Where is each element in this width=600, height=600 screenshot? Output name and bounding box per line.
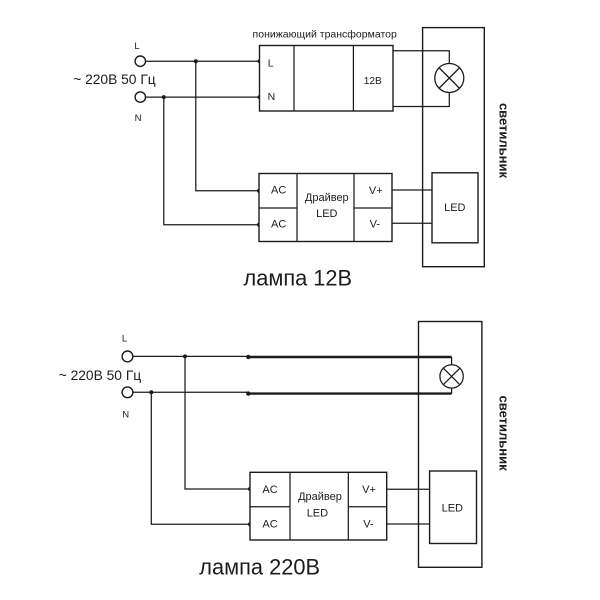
- svg-text:лампа 12В: лампа 12В: [244, 266, 353, 291]
- svg-text:L: L: [122, 333, 127, 344]
- svg-text:LED: LED: [316, 208, 337, 220]
- svg-text:V+: V+: [362, 484, 376, 496]
- svg-text:AC: AC: [271, 219, 286, 231]
- svg-text:V-: V-: [363, 518, 374, 530]
- svg-text:AC: AC: [271, 185, 286, 197]
- svg-text:светильник: светильник: [496, 396, 511, 472]
- svg-text:AC: AC: [262, 518, 277, 530]
- svg-text:лампа 220В: лампа 220В: [199, 554, 320, 579]
- svg-text:LED: LED: [442, 502, 463, 514]
- svg-text:L: L: [268, 58, 274, 70]
- svg-text:~ 220В 50 Гц: ~ 220В 50 Гц: [59, 368, 142, 383]
- svg-text:L: L: [134, 41, 139, 52]
- svg-text:LED: LED: [444, 202, 465, 214]
- svg-text:LED: LED: [307, 507, 328, 519]
- svg-text:N: N: [122, 410, 129, 421]
- svg-text:Драйвер: Драйвер: [305, 192, 349, 204]
- svg-text:светильник: светильник: [496, 103, 511, 179]
- svg-text:понижающий трансформатор: понижающий трансформатор: [253, 28, 397, 40]
- svg-text:V+: V+: [369, 185, 383, 197]
- svg-text:12В: 12В: [364, 76, 382, 87]
- svg-text:AC: AC: [262, 484, 277, 496]
- svg-text:V-: V-: [370, 219, 381, 231]
- svg-text:N: N: [135, 113, 142, 124]
- svg-text:N: N: [268, 91, 276, 103]
- svg-text:Драйвер: Драйвер: [298, 491, 342, 503]
- svg-text:~ 220В 50 Гц: ~ 220В 50 Гц: [73, 72, 156, 87]
